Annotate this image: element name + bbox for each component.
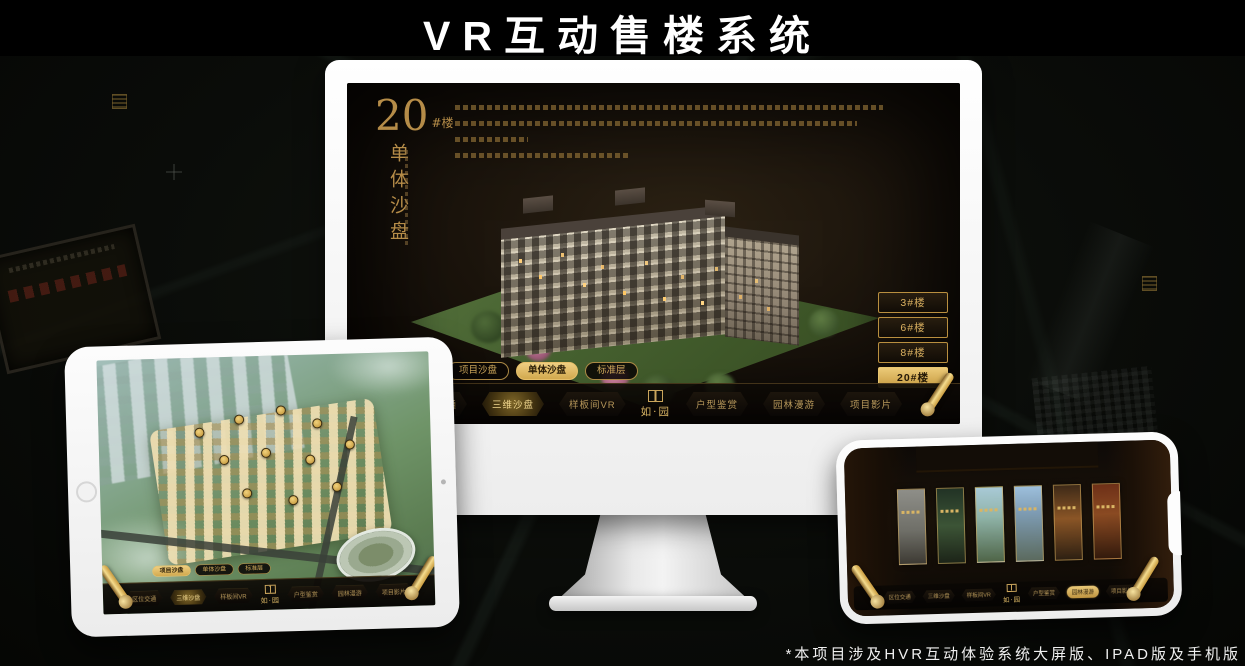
poster-stage: VR互动售楼系统 20 #楼 单体沙盘 bbox=[0, 0, 1245, 666]
page-title: VR互动售楼系统 bbox=[0, 2, 1245, 62]
gallery-strip[interactable] bbox=[1052, 484, 1082, 561]
tablet-screen: 项目沙盘 单体沙盘 标准层 区位交通 三维沙盘 样板间VR 如·园 户型鉴赏 园… bbox=[96, 351, 435, 614]
background-gold-logo-chip bbox=[1142, 276, 1157, 291]
nav-item-3d-sandbox[interactable]: 三维沙盘 bbox=[482, 392, 544, 416]
nav-item-project-film[interactable]: 项目影片 bbox=[840, 392, 902, 416]
gallery-strip[interactable] bbox=[935, 487, 965, 564]
roof-tower bbox=[705, 200, 735, 218]
nav-item-unit-gallery[interactable]: 户型鉴赏 bbox=[288, 586, 324, 602]
phone-screen: 区位交通 三维沙盘 样板间VR 如·园 户型鉴赏 园林漫游 项目影片 bbox=[844, 439, 1175, 616]
phone: 区位交通 三维沙盘 样板间VR 如·园 户型鉴赏 园林漫游 项目影片 bbox=[835, 431, 1182, 624]
tablet: 项目沙盘 单体沙盘 标准层 区位交通 三维沙盘 样板间VR 如·园 户型鉴赏 园… bbox=[64, 337, 460, 638]
building-model[interactable] bbox=[405, 161, 891, 419]
subtab-standard-floor[interactable]: 标准层 bbox=[585, 362, 638, 380]
heading-suffix: #楼 bbox=[431, 114, 453, 135]
lit-windows bbox=[505, 231, 508, 235]
nav-item-3d-sandbox[interactable]: 三维沙盘 bbox=[170, 589, 206, 605]
brand-emblem-icon bbox=[1007, 584, 1017, 592]
brand-emblem-icon bbox=[648, 390, 663, 402]
brand-emblem-icon bbox=[264, 584, 275, 593]
subtab-single-sandbox[interactable]: 单体沙盘 bbox=[195, 564, 234, 576]
subtab-project-sandbox[interactable]: 项目沙盘 bbox=[152, 565, 191, 577]
subtab-project-sandbox[interactable]: 项目沙盘 bbox=[447, 362, 509, 380]
nav-item-garden-tour[interactable]: 园林漫游 bbox=[1067, 586, 1099, 599]
nav-item-location[interactable]: 区位交通 bbox=[884, 591, 916, 604]
building-button-3[interactable]: 3#楼 bbox=[878, 292, 948, 313]
tablet-home-button[interactable] bbox=[76, 481, 98, 503]
background-gold-logo-chip bbox=[112, 94, 127, 109]
nav-item-showroom-vr[interactable]: 样板间VR bbox=[962, 588, 996, 601]
subtab-single-sandbox[interactable]: 单体沙盘 bbox=[516, 362, 578, 380]
description-paragraph bbox=[455, 105, 883, 169]
nav-item-garden-tour[interactable]: 园林漫游 bbox=[763, 392, 825, 416]
roof-tower bbox=[615, 187, 645, 205]
panorama-gallery bbox=[845, 481, 1173, 566]
compass-star-icon bbox=[166, 164, 182, 180]
interior-lintel bbox=[915, 441, 1098, 472]
heading-number: 20 bbox=[375, 97, 428, 135]
gallery-strip[interactable] bbox=[974, 486, 1004, 563]
monitor-stand-neck bbox=[553, 512, 753, 604]
tree bbox=[809, 309, 839, 337]
tablet-camera-icon bbox=[441, 479, 446, 484]
nav-item-showroom-vr[interactable]: 样板间VR bbox=[214, 588, 253, 604]
nav-item-showroom-vr[interactable]: 样板间VR bbox=[559, 392, 626, 416]
building-button-6[interactable]: 6#楼 bbox=[878, 317, 948, 338]
footnote: *本项目涉及HVR互动体验系统大屏版、IPAD版及手机版 bbox=[786, 643, 1241, 664]
cloud-haze bbox=[328, 351, 435, 398]
building-front-facade bbox=[501, 205, 725, 358]
brand-logo: 如·园 bbox=[641, 390, 671, 419]
nav-item-garden-tour[interactable]: 园林漫游 bbox=[332, 585, 368, 601]
subtab-standard-floor[interactable]: 标准层 bbox=[238, 563, 271, 575]
nav-item-3d-sandbox[interactable]: 三维沙盘 bbox=[923, 590, 955, 603]
gallery-strip[interactable] bbox=[1013, 485, 1043, 562]
roof-tower bbox=[523, 195, 553, 213]
monitor-stand-base bbox=[549, 596, 757, 611]
nav-item-unit-gallery[interactable]: 户型鉴赏 bbox=[1028, 587, 1060, 600]
gallery-strip[interactable] bbox=[896, 488, 926, 565]
phone-notch bbox=[1167, 491, 1182, 555]
brand-logo: 如·园 bbox=[1003, 584, 1022, 604]
tree bbox=[471, 311, 505, 343]
gallery-strip[interactable] bbox=[1091, 483, 1121, 560]
building-selector: 3#楼 6#楼 8#楼 20#楼 bbox=[878, 292, 948, 388]
building-button-8[interactable]: 8#楼 bbox=[878, 342, 948, 363]
tablet-subtabs: 项目沙盘 单体沙盘 标准层 bbox=[152, 563, 270, 577]
nav-item-unit-gallery[interactable]: 户型鉴赏 bbox=[686, 392, 748, 416]
sandbox-subtabs: 项目沙盘 单体沙盘 标准层 bbox=[447, 362, 638, 380]
brand-logo: 如·园 bbox=[260, 584, 280, 606]
building-side-facade bbox=[725, 226, 799, 345]
